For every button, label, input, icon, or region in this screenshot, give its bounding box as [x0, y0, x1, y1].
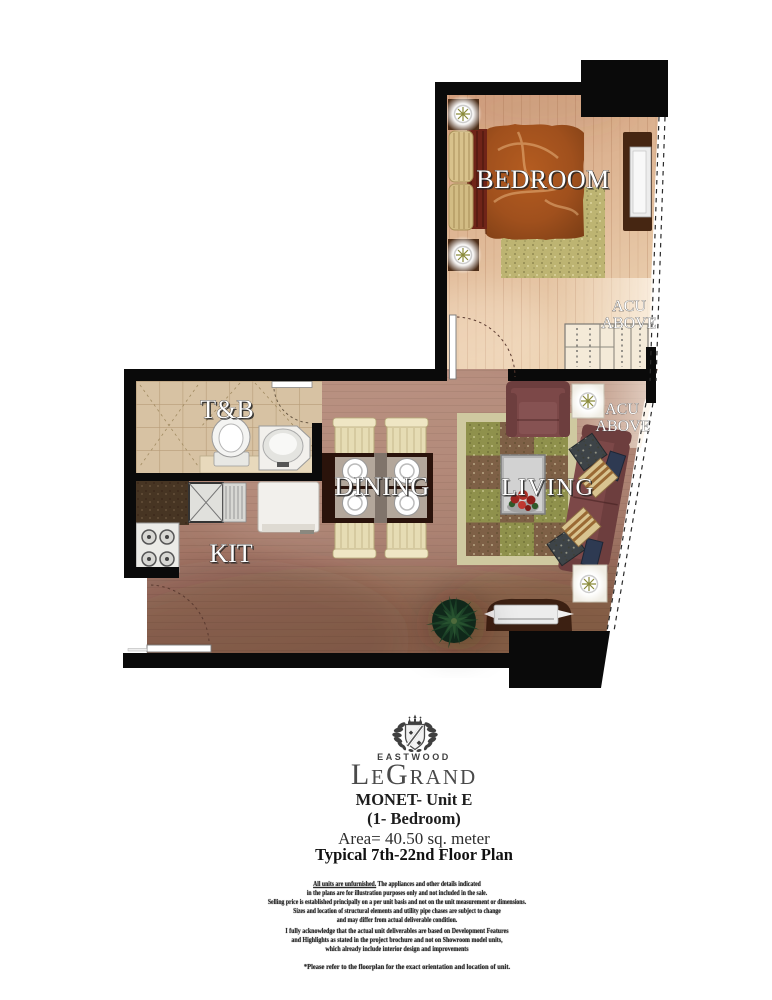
svg-text:DINING: DINING: [334, 472, 429, 501]
svg-text:ABOVE: ABOVE: [595, 418, 650, 435]
svg-text:ACU: ACU: [612, 298, 646, 315]
svg-text:BEDROOM: BEDROOM: [476, 165, 610, 194]
svg-text:KIT: KIT: [209, 539, 252, 568]
svg-text:ABOVE: ABOVE: [601, 315, 656, 332]
svg-text:T&B: T&B: [200, 395, 253, 424]
svg-text:ACU: ACU: [605, 401, 639, 418]
svg-text:LIVING: LIVING: [501, 474, 594, 501]
